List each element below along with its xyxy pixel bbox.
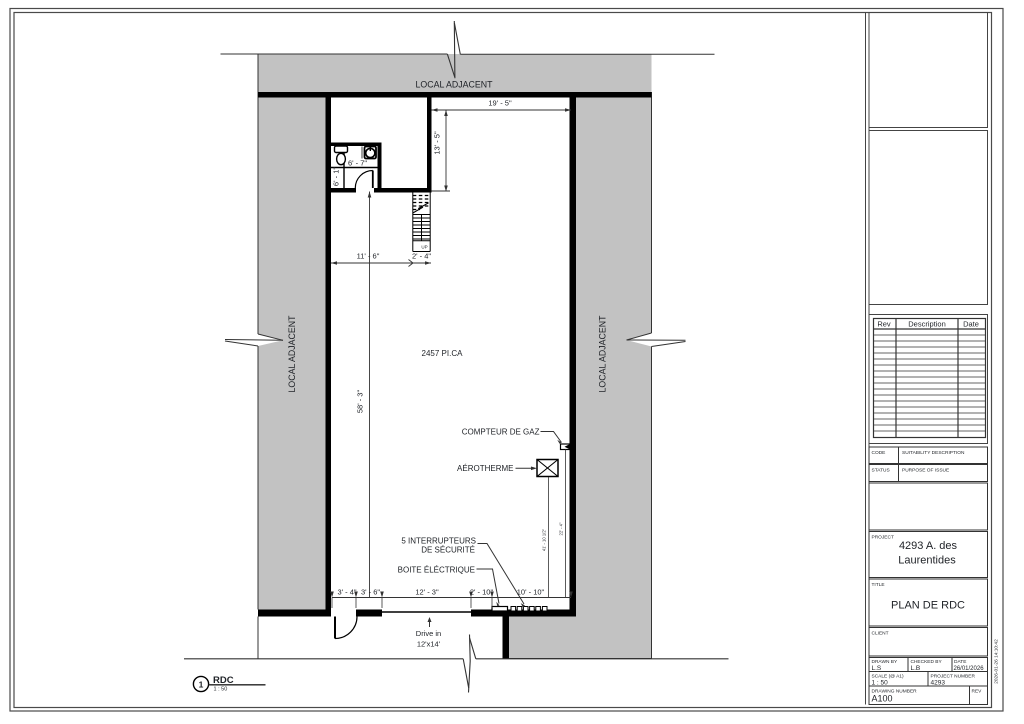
svg-text:Rev: Rev xyxy=(877,320,891,329)
svg-text:5 INTERRUPTEURS: 5 INTERRUPTEURS xyxy=(401,537,476,546)
svg-text:1 : 50: 1 : 50 xyxy=(214,687,228,693)
svg-text:2457 PI.CA: 2457 PI.CA xyxy=(422,349,464,358)
svg-text:PROJECT: PROJECT xyxy=(872,535,894,541)
svg-text:COMPTEUR DE GAZ: COMPTEUR DE GAZ xyxy=(462,428,540,437)
svg-text:13' - 5": 13' - 5" xyxy=(433,131,442,155)
svg-text:3' - 6": 3' - 6" xyxy=(361,588,380,597)
svg-text:LOCAL ADJACENT: LOCAL ADJACENT xyxy=(598,315,608,393)
svg-text:3' - 4": 3' - 4" xyxy=(337,588,356,597)
svg-text:PURPOSE OF ISSUE: PURPOSE OF ISSUE xyxy=(902,468,949,474)
svg-text:22' - 4": 22' - 4" xyxy=(559,522,564,536)
svg-text:REV: REV xyxy=(972,689,983,695)
svg-text:DE SÉCURITÉ: DE SÉCURITÉ xyxy=(421,546,475,555)
svg-text:A100: A100 xyxy=(872,694,893,704)
svg-text:10' - 10": 10' - 10" xyxy=(517,588,545,597)
svg-text:SUITABILITY DESCRIPTION: SUITABILITY DESCRIPTION xyxy=(902,450,965,456)
svg-text:6' - 7": 6' - 7" xyxy=(348,159,367,168)
svg-text:STATUS: STATUS xyxy=(872,468,890,474)
svg-text:AÉROTHERME: AÉROTHERME xyxy=(457,464,513,473)
svg-text:PLAN DE RDC: PLAN DE RDC xyxy=(891,600,965,612)
svg-text:2' - 4": 2' - 4" xyxy=(412,252,431,261)
svg-text:DATE: DATE xyxy=(954,659,966,665)
svg-text:Description: Description xyxy=(908,320,946,329)
svg-text:41' - 10 1/2": 41' - 10 1/2" xyxy=(542,528,547,551)
svg-text:Date: Date xyxy=(963,320,979,329)
svg-text:Drive in: Drive in xyxy=(416,629,441,638)
svg-text:TITLE: TITLE xyxy=(872,582,885,588)
svg-text:6' - 1": 6' - 1" xyxy=(332,167,341,186)
svg-text:12' - 3": 12' - 3" xyxy=(415,588,439,597)
svg-text:58' - 3": 58' - 3" xyxy=(356,390,365,414)
svg-text:CLIENT: CLIENT xyxy=(872,631,889,637)
svg-text:LOCAL ADJACENT: LOCAL ADJACENT xyxy=(287,315,297,393)
svg-text:4293 A. des: 4293 A. des xyxy=(899,540,958,552)
svg-text:Laurentides: Laurentides xyxy=(898,555,956,567)
svg-text:1: 1 xyxy=(199,680,204,690)
svg-text:L.B: L.B xyxy=(911,665,921,672)
svg-text:2' - 10": 2' - 10" xyxy=(470,588,494,597)
svg-text:UP: UP xyxy=(421,245,427,250)
svg-text:BOITE ÉLÉCTRIQUE: BOITE ÉLÉCTRIQUE xyxy=(398,566,475,575)
svg-text:12'x14': 12'x14' xyxy=(417,640,441,649)
svg-text:4293: 4293 xyxy=(931,680,946,687)
svg-text:CODE: CODE xyxy=(872,450,886,456)
svg-text:11' - 6": 11' - 6" xyxy=(357,252,380,261)
svg-text:L.S: L.S xyxy=(872,665,882,672)
svg-text:19' - 5": 19' - 5" xyxy=(488,99,512,108)
svg-text:2026-01-26 14:10:42: 2026-01-26 14:10:42 xyxy=(994,639,1000,684)
svg-text:1 : 50: 1 : 50 xyxy=(872,680,889,687)
svg-text:LOCAL ADJACENT: LOCAL ADJACENT xyxy=(416,80,494,90)
